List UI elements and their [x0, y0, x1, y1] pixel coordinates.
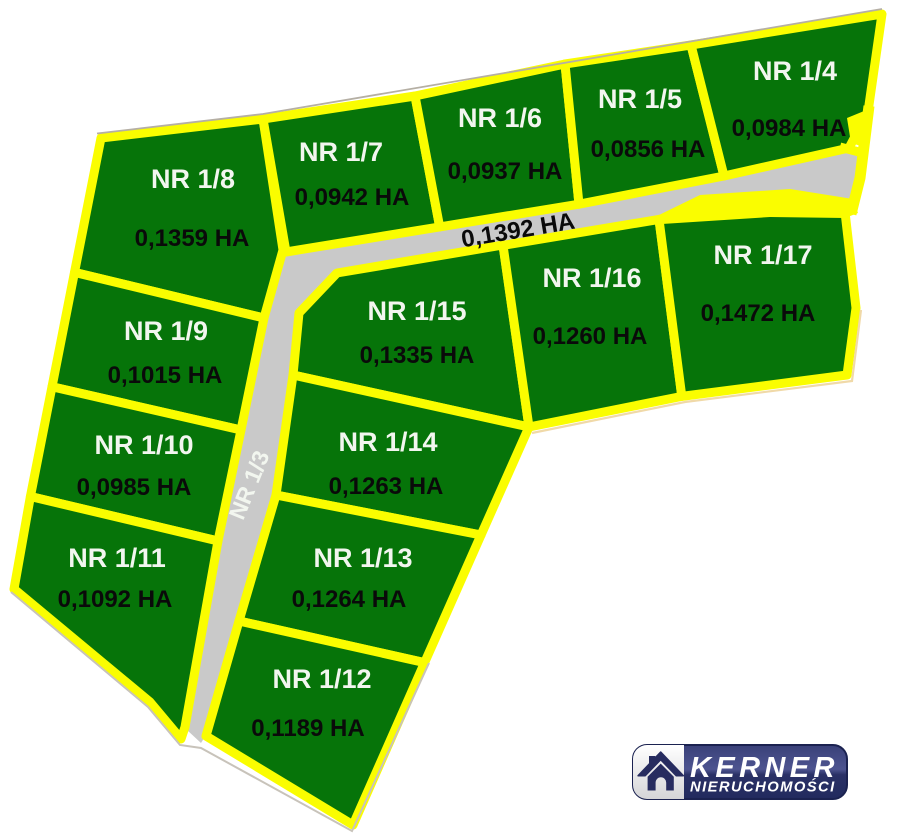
svg-text:NR 1/16: NR 1/16: [542, 263, 641, 293]
svg-text:0,0937 HA: 0,0937 HA: [448, 158, 563, 185]
svg-text:0,1263 HA: 0,1263 HA: [329, 473, 444, 500]
svg-text:0,1264 HA: 0,1264 HA: [292, 586, 407, 613]
svg-text:0,1260 HA: 0,1260 HA: [533, 323, 648, 350]
svg-text:NR 1/11: NR 1/11: [68, 543, 166, 573]
svg-text:0,1015 HA: 0,1015 HA: [108, 362, 223, 389]
svg-text:NR 1/9: NR 1/9: [124, 316, 208, 346]
svg-text:NR 1/15: NR 1/15: [367, 296, 466, 326]
svg-text:NR 1/13: NR 1/13: [313, 543, 412, 573]
svg-text:0,1472 HA: 0,1472 HA: [701, 300, 816, 327]
svg-text:NR 1/4: NR 1/4: [753, 56, 837, 86]
svg-text:NIERUCHOMOŚCI: NIERUCHOMOŚCI: [690, 778, 836, 796]
svg-text:NR 1/5: NR 1/5: [598, 84, 682, 114]
svg-text:NR 1/8: NR 1/8: [151, 164, 235, 194]
svg-text:0,1189 HA: 0,1189 HA: [251, 715, 364, 742]
svg-text:NR 1/10: NR 1/10: [94, 430, 193, 460]
svg-text:0,0856 HA: 0,0856 HA: [591, 136, 706, 163]
svg-text:0,0984 HA: 0,0984 HA: [732, 115, 847, 142]
svg-text:NR 1/6: NR 1/6: [458, 103, 542, 133]
svg-text:NR 1/12: NR 1/12: [272, 664, 371, 694]
svg-text:NR 1/17: NR 1/17: [713, 240, 812, 270]
svg-text:0,0985 HA: 0,0985 HA: [77, 474, 192, 501]
svg-text:NR 1/7: NR 1/7: [299, 137, 383, 167]
svg-text:0,1335 HA: 0,1335 HA: [360, 342, 475, 369]
svg-text:0,1359 HA: 0,1359 HA: [135, 225, 250, 252]
svg-text:0,0942 HA: 0,0942 HA: [295, 184, 410, 211]
svg-text:0,1092 HA: 0,1092 HA: [58, 586, 173, 613]
svg-text:NR 1/14: NR 1/14: [338, 427, 437, 457]
